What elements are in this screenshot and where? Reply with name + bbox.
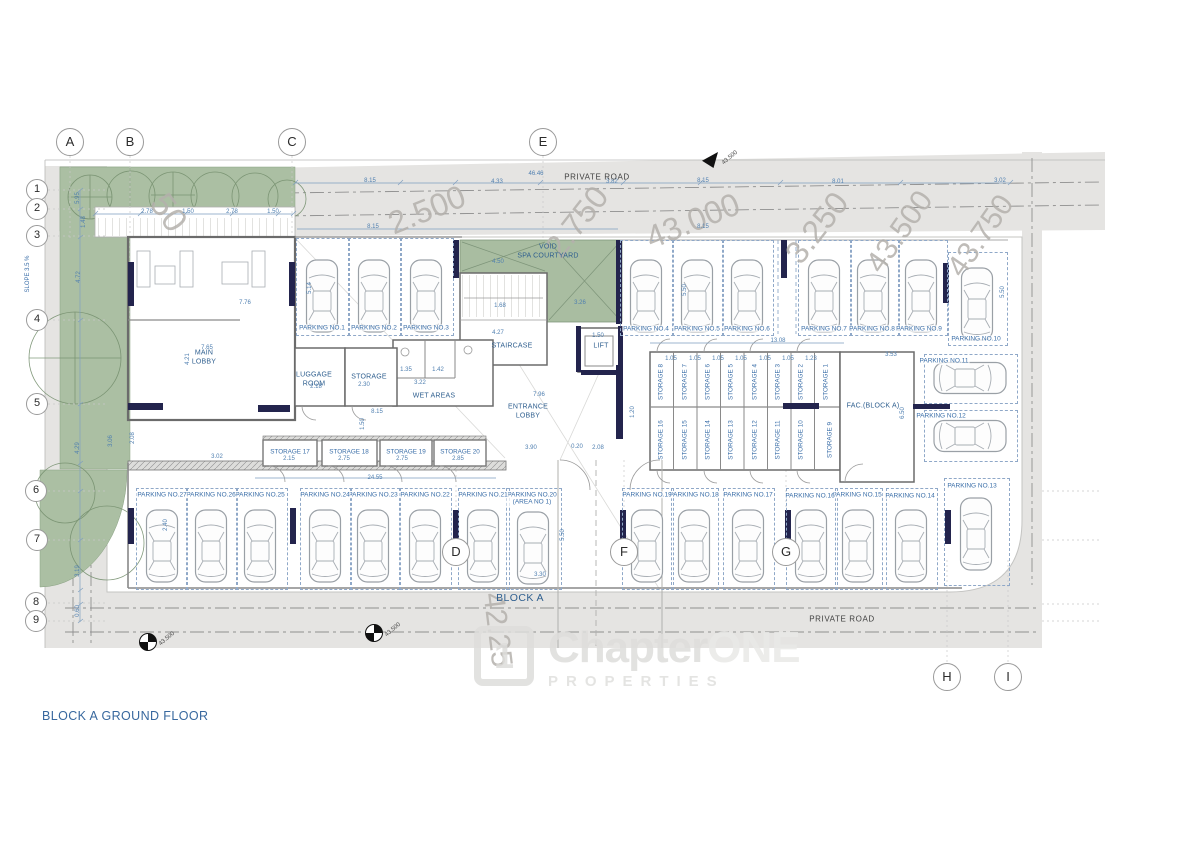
storage-label: STORAGE 2 xyxy=(798,364,805,400)
car-icon xyxy=(730,258,764,334)
car-icon xyxy=(932,419,1008,453)
parking-label: PARKING NO.16 xyxy=(784,492,835,499)
grid-bubble-H: H xyxy=(933,663,961,691)
dimension-text: 8.15 xyxy=(364,178,376,184)
dimension-text: 2.40 xyxy=(163,519,169,531)
dimension-text: 1.50 xyxy=(360,418,366,430)
dimension-text: 24.55 xyxy=(367,475,382,481)
drawing-title: BLOCK A GROUND FLOOR xyxy=(42,709,208,723)
storage-label: STORAGE 5 xyxy=(728,364,735,400)
dimension-text: 1.50 xyxy=(592,333,604,339)
spot-level-label: 43.500 xyxy=(721,150,739,166)
dimension-text: 2.75 xyxy=(338,456,350,462)
room-label-wet-areas: WET AREAS xyxy=(413,393,456,402)
parking-label: PARKING NO.10 xyxy=(950,335,1001,342)
dimension-text: 1.68 xyxy=(494,303,506,309)
grid-bubble-5: 5 xyxy=(26,393,48,415)
dimension-text: 4.50 xyxy=(492,259,504,265)
parking-label: PARKING NO.17 xyxy=(722,491,773,498)
car-icon xyxy=(408,508,442,584)
dimension-text: 3.90 xyxy=(525,445,537,451)
dimension-text: 6.50 xyxy=(900,407,906,419)
parking-label: PARKING NO.21 xyxy=(457,491,508,498)
grid-bubble-D: D xyxy=(442,538,470,566)
grid-bubble-A: A xyxy=(56,128,84,156)
dimension-text: 5.14 xyxy=(307,282,313,294)
storage-label: STORAGE 17 xyxy=(270,449,309,456)
dimension-text: 46.46 xyxy=(528,171,543,177)
grid-bubble-6: 6 xyxy=(25,480,47,502)
dimension-text: 8.15 xyxy=(371,409,383,415)
dimension-text: 1.05 xyxy=(689,356,701,362)
dimension-text: 4.27 xyxy=(492,330,504,336)
car-icon xyxy=(243,508,277,584)
storage-label: STORAGE 16 xyxy=(658,420,665,459)
parking-label: PARKING NO.13 xyxy=(946,482,997,489)
dimension-text: 8.15 xyxy=(697,224,709,230)
dimension-text: 1.50 xyxy=(182,209,194,215)
car-icon xyxy=(409,258,443,334)
dimension-text: 2.78 xyxy=(226,209,238,215)
dimension-text: 3.30 xyxy=(534,572,546,578)
parking-label: PARKING NO.3 xyxy=(402,324,450,331)
dimension-text: 3.06 xyxy=(108,435,114,447)
dimension-text: 2.75 xyxy=(396,456,408,462)
storage-label: STORAGE 8 xyxy=(658,364,665,400)
dimension-text: 5.50 xyxy=(560,529,566,541)
dimension-text: 0.60 xyxy=(75,605,81,617)
parking-label: PARKING NO.8 xyxy=(848,325,896,332)
dimension-text: 1.20 xyxy=(630,406,636,418)
dimension-text: 8.01 xyxy=(832,179,844,185)
dimension-text: 2.15 xyxy=(283,456,295,462)
storage-label: STORAGE 7 xyxy=(682,364,689,400)
storage-label: STORAGE 20 xyxy=(440,449,479,456)
dimension-text: 0.20 xyxy=(571,444,583,450)
dimension-text: 3.53 xyxy=(885,352,897,358)
dimension-text: 1.50 xyxy=(267,209,279,215)
parking-label: PARKING NO.11 xyxy=(919,357,970,364)
storage-label: STORAGE 19 xyxy=(386,449,425,456)
storage-label: STORAGE 9 xyxy=(827,422,834,458)
storage-label: STORAGE 13 xyxy=(728,420,735,459)
dimension-text: 8.15 xyxy=(367,224,379,230)
car-icon xyxy=(356,508,390,584)
parking-label: PARKING NO.2 xyxy=(350,324,398,331)
dimension-text: 3.26 xyxy=(574,300,586,306)
private-road-label-bottom: PRIVATE ROAD xyxy=(809,615,875,624)
storage-label: STORAGE 15 xyxy=(682,420,689,459)
grid-bubble-G: G xyxy=(772,538,800,566)
spot-level-label: 43.500 xyxy=(384,622,402,638)
dimension-text: 2.08 xyxy=(592,445,604,451)
car-icon xyxy=(794,508,828,584)
storage-label: STORAGE 18 xyxy=(329,449,368,456)
storage-label: STORAGE 12 xyxy=(752,420,759,459)
dimension-text: 1.05 xyxy=(712,356,724,362)
floor-plan-canvas: ABCEDFGHI123456789MAIN LOBBYLUGGAGE ROOM… xyxy=(0,0,1200,848)
parking-label: PARKING NO.24 xyxy=(299,491,350,498)
dimension-text: 3.02 xyxy=(994,178,1006,184)
parking-label: PARKING NO.6 xyxy=(723,325,771,332)
dimension-text: 1.05 xyxy=(782,356,794,362)
dimension-text: 1.42 xyxy=(432,367,444,373)
room-label-lift: LIFT xyxy=(593,343,608,352)
room-label-void-spa-courtyard: VOID SPA COURTYARD xyxy=(517,243,578,261)
room-label-fac-block-a: FAC.(BLOCK A) xyxy=(847,403,900,412)
parking-label: PARKING NO.27 xyxy=(136,491,187,498)
parking-label: PARKING NO.14 xyxy=(884,492,935,499)
parking-label: PARKING NO.26 xyxy=(185,491,236,498)
dimension-text: 5.50 xyxy=(1000,286,1006,298)
car-icon xyxy=(841,508,875,584)
storage-label: STORAGE 10 xyxy=(798,420,805,459)
storage-label: STORAGE 4 xyxy=(752,364,759,400)
dimension-text: 4.29 xyxy=(75,442,81,454)
dimension-text: 3.19 xyxy=(75,565,81,577)
spot-level-marker xyxy=(365,624,383,642)
dimension-text: 4.33 xyxy=(491,179,503,185)
dimension-text: 1.23 xyxy=(805,356,817,362)
parking-label: PARKING NO.25 xyxy=(234,491,285,498)
spot-level-marker xyxy=(702,152,718,168)
parking-label: PARKING NO.20 (AREA NO 1) xyxy=(506,492,557,507)
dimension-text: 5.50 xyxy=(682,284,688,296)
dimension-text: 8.15 xyxy=(697,178,709,184)
room-label-staircase: STAIRCASE xyxy=(492,343,533,352)
storage-label: STORAGE 11 xyxy=(775,421,782,460)
car-icon xyxy=(629,258,663,334)
spot-level-label: 43.500 xyxy=(158,631,176,647)
car-icon xyxy=(904,258,938,334)
car-icon xyxy=(680,258,714,334)
car-icon xyxy=(932,361,1008,395)
car-icon xyxy=(959,496,993,572)
dimension-text: 7.76 xyxy=(239,300,251,306)
grid-bubble-F: F xyxy=(610,538,638,566)
parking-label: PARKING NO.15 xyxy=(831,491,882,498)
dimension-text: 7.96 xyxy=(533,392,545,398)
parking-label: PARKING NO.9 xyxy=(895,325,943,332)
parking-label: PARKING NO.5 xyxy=(673,325,721,332)
parking-label: PARKING NO.23 xyxy=(347,491,398,498)
dimension-text: 1.35 xyxy=(400,367,412,373)
dimension-text: 3.22 xyxy=(414,380,426,386)
car-icon xyxy=(466,508,500,584)
parking-label: PARKING NO.4 xyxy=(622,325,670,332)
storage-label: STORAGE 14 xyxy=(705,420,712,459)
dimension-text: 1.05 xyxy=(735,356,747,362)
grid-bubble-E: E xyxy=(529,128,557,156)
grid-bubble-9: 9 xyxy=(25,610,47,632)
grid-bubble-4: 4 xyxy=(26,309,48,331)
dimension-text: 5.95 xyxy=(75,192,81,204)
block-a-label: BLOCK A xyxy=(496,592,544,604)
car-icon xyxy=(894,508,928,584)
storage-label: STORAGE 6 xyxy=(705,364,712,400)
grid-bubble-2: 2 xyxy=(26,198,48,220)
dimension-text: 1.05 xyxy=(665,356,677,362)
parking-label: PARKING NO.1 xyxy=(298,324,346,331)
room-label-luggage-room: LUGGAGE ROOM xyxy=(296,371,332,389)
car-icon xyxy=(807,258,841,334)
private-road-label-top: PRIVATE ROAD xyxy=(564,173,630,182)
car-icon xyxy=(677,508,711,584)
car-icon xyxy=(305,258,339,334)
dimension-text: 1.05 xyxy=(759,356,771,362)
room-label-entrance-lobby: ENTRANCE LOBBY xyxy=(508,403,548,421)
car-icon xyxy=(731,508,765,584)
dimension-text: 4.21 xyxy=(185,353,191,365)
slope-label: SLOPE 3.5 % xyxy=(25,255,31,292)
storage-label: STORAGE 3 xyxy=(775,364,782,400)
dimension-text: 3.02 xyxy=(211,454,223,460)
dimension-text: 4.72 xyxy=(76,271,82,283)
room-label-main-lobby: MAIN LOBBY xyxy=(192,349,216,367)
parking-label: PARKING NO.22 xyxy=(399,491,450,498)
parking-label: PARKING NO.19 xyxy=(621,491,672,498)
car-icon xyxy=(357,258,391,334)
grid-bubble-I: I xyxy=(994,663,1022,691)
parking-label: PARKING NO.12 xyxy=(915,412,966,419)
grid-bubble-7: 7 xyxy=(26,529,48,551)
car-icon xyxy=(194,508,228,584)
dimension-text: 1.48 xyxy=(81,216,87,228)
grid-bubble-3: 3 xyxy=(26,225,48,247)
grid-bubble-B: B xyxy=(116,128,144,156)
dimension-text: 2.78 xyxy=(141,209,153,215)
car-icon xyxy=(308,508,342,584)
car-icon xyxy=(145,508,179,584)
dimension-text: 2.85 xyxy=(452,456,464,462)
dimension-text: 13.08 xyxy=(770,338,785,344)
grid-bubble-C: C xyxy=(278,128,306,156)
spot-level-marker xyxy=(139,633,157,651)
contour-level-label: 2.500 xyxy=(383,178,471,242)
room-label-storage-room: STORAGE xyxy=(351,374,387,383)
parking-label: PARKING NO.18 xyxy=(668,491,719,498)
dimension-text: 2.08 xyxy=(130,432,136,444)
storage-label: STORAGE 1 xyxy=(823,364,830,400)
dimension-text: 2.30 xyxy=(358,382,370,388)
parking-label: PARKING NO.7 xyxy=(800,325,848,332)
